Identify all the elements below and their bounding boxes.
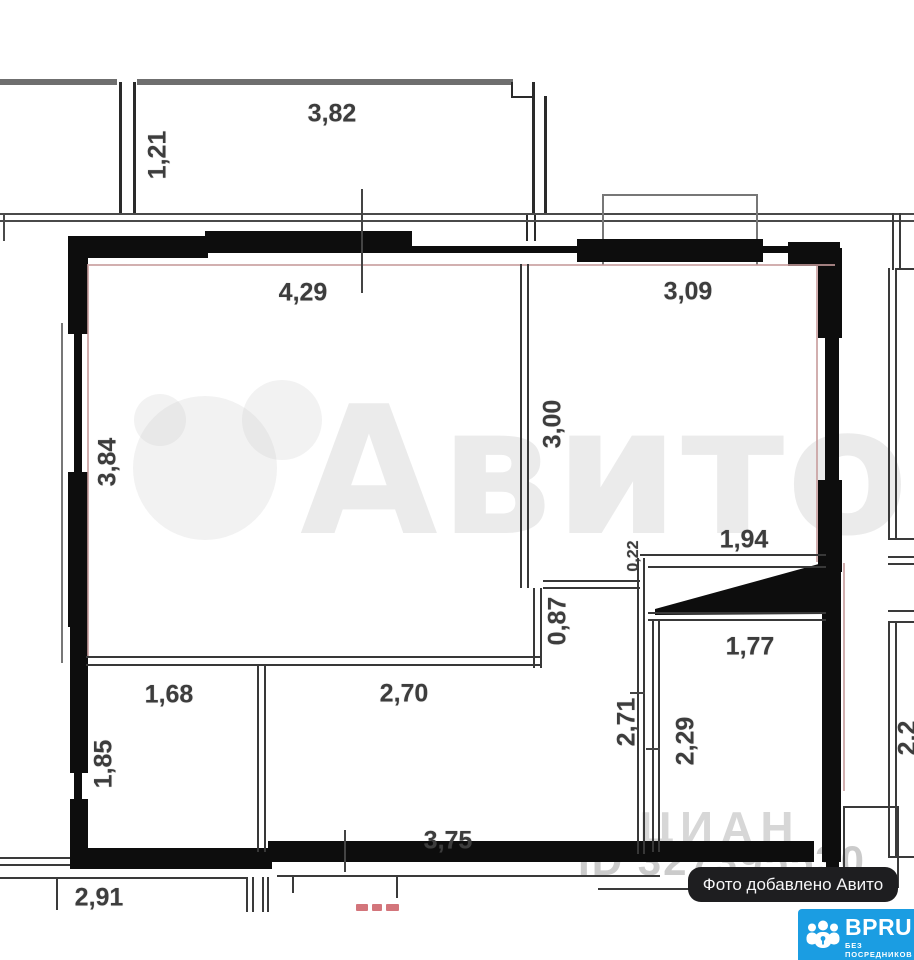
dim-label-bottom-width: 3,75 <box>424 827 473 856</box>
dim-label-storage-height: 1,85 <box>90 740 119 789</box>
dim-label-niche-step: 0,22 <box>625 540 643 571</box>
dim-label-wall-stub: 0,87 <box>544 597 573 646</box>
interior-walls <box>86 264 826 854</box>
people-lock-icon <box>805 919 841 956</box>
neighbor-unit-right <box>888 213 914 858</box>
bpru-logo-title: BPRU <box>845 916 914 939</box>
clipped-red-label <box>356 904 404 912</box>
dim-label-neighbor-width: 2,91 <box>75 884 124 913</box>
floor-plan-drawing <box>0 0 914 960</box>
dim-label-bedroom-height: 3,00 <box>539 400 568 449</box>
dim-label-storage-width: 1,68 <box>145 681 194 710</box>
dim-label-balcony-width: 3,82 <box>308 100 357 129</box>
dim-label-living-height: 3,84 <box>94 438 123 487</box>
apartment-outer-walls <box>68 231 842 891</box>
photo-added-badge: Фото добавлено Авито <box>688 867 898 902</box>
vent-shaft-wedge <box>655 562 826 615</box>
dim-label-hallway-width: 2,70 <box>380 680 429 709</box>
dim-label-bathroom-height: 2,29 <box>672 717 701 766</box>
balcony-walls <box>0 78 547 241</box>
dimension-ticks <box>344 189 660 872</box>
dim-label-living-width: 4,29 <box>279 279 328 308</box>
bpru-logo-subtitle: БЕЗ ПОСРЕДНИКОВ <box>845 941 914 959</box>
dim-label-neighbor-right-partial: 2,2 <box>894 721 914 756</box>
dim-label-bathroom-width: 1,77 <box>726 633 775 662</box>
dim-label-balcony-depth: 1,21 <box>144 131 173 180</box>
dim-label-niche-width: 1,94 <box>720 526 769 555</box>
bpru-logo-badge: BPRU БЕЗ ПОСРЕДНИКОВ <box>798 909 914 960</box>
photo-added-badge-label: Фото добавлено Авито <box>703 875 883 895</box>
floor-plan-photo: Авито ЦИАН ID 327395530 <box>0 0 914 960</box>
dim-label-bedroom-width: 3,09 <box>664 278 713 307</box>
dim-label-hallway-height: 2,71 <box>613 698 642 747</box>
